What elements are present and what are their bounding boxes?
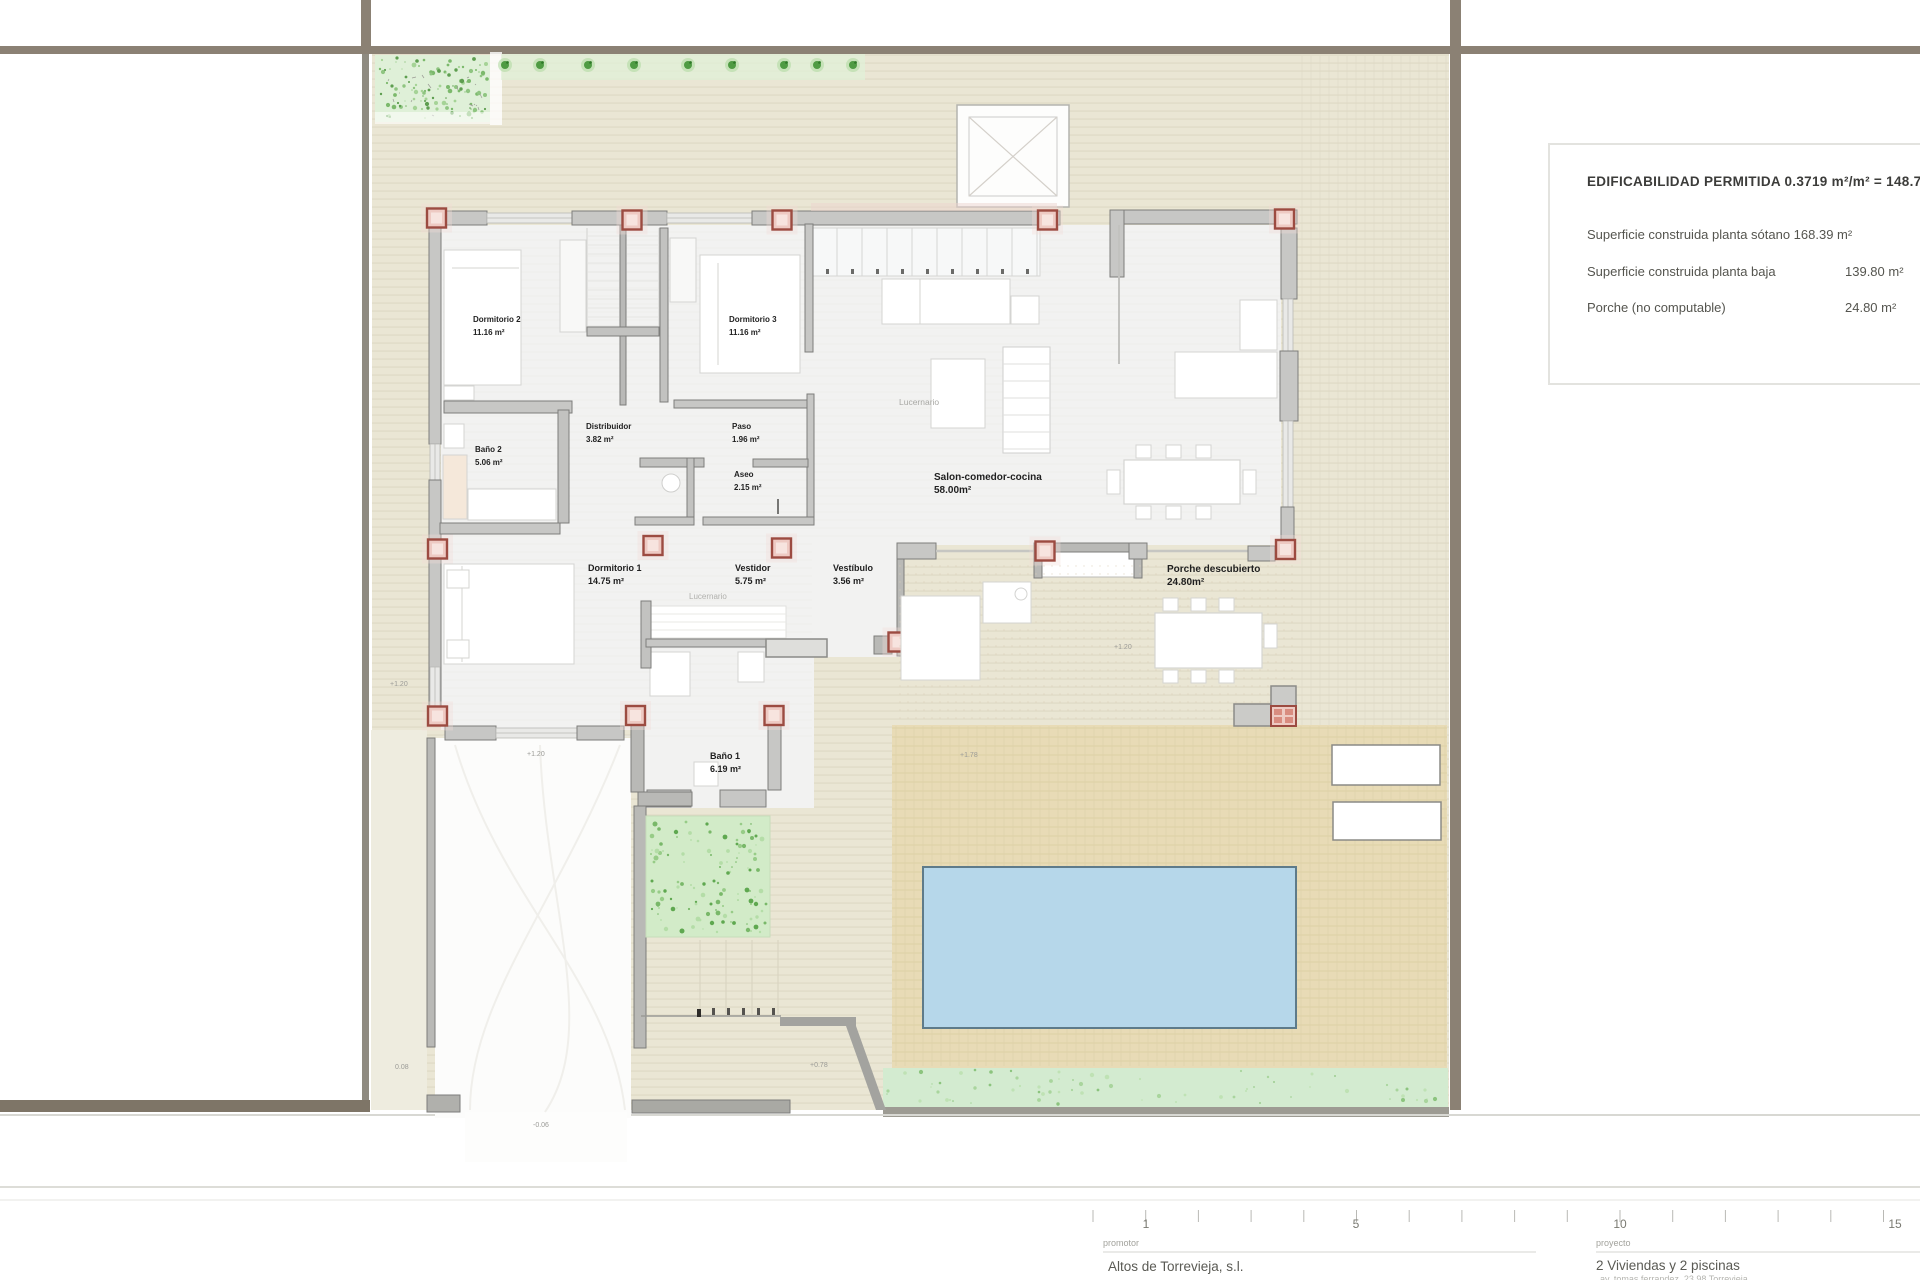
svg-text:+1.20: +1.20 <box>1114 644 1132 651</box>
svg-text:3.56 m²: 3.56 m² <box>833 576 864 586</box>
svg-text:15: 15 <box>1888 1217 1902 1231</box>
svg-text:139.80 m²: 139.80 m² <box>1845 264 1904 279</box>
svg-text:EDIFICABILIDAD PERMITIDA 0.371: EDIFICABILIDAD PERMITIDA 0.3719 m²/m² = … <box>1587 174 1920 189</box>
svg-text:1.96 m²: 1.96 m² <box>732 435 760 444</box>
svg-text:14.75 m²: 14.75 m² <box>588 576 624 586</box>
svg-text:+1.20: +1.20 <box>527 751 545 758</box>
svg-text:av. tomas ferrandez, 23.98 Tor: av. tomas ferrandez, 23.98 Torrevieja <box>1600 1274 1748 1280</box>
svg-text:10: 10 <box>1613 1217 1627 1231</box>
svg-text:Dormitorio 3: Dormitorio 3 <box>729 315 777 324</box>
svg-text:24.80 m²: 24.80 m² <box>1845 300 1897 315</box>
svg-text:5.06 m²: 5.06 m² <box>475 458 503 467</box>
svg-text:24.80m²: 24.80m² <box>1167 577 1205 588</box>
svg-text:Porche (no computable): Porche (no computable) <box>1587 300 1726 315</box>
svg-text:11.16 m²: 11.16 m² <box>729 328 761 337</box>
svg-text:Porche descubierto: Porche descubierto <box>1167 564 1260 575</box>
svg-text:Superficie construida planta b: Superficie construida planta baja <box>1587 264 1776 279</box>
svg-text:Salon-comedor-cocina: Salon-comedor-cocina <box>934 472 1042 483</box>
svg-text:6.19 m²: 6.19 m² <box>710 764 741 774</box>
svg-text:5.75 m²: 5.75 m² <box>735 576 766 586</box>
svg-text:Distribuidor: Distribuidor <box>586 422 631 431</box>
svg-text:Vestíbulo: Vestíbulo <box>833 563 874 573</box>
svg-text:5: 5 <box>1353 1217 1360 1231</box>
svg-text:promotor: promotor <box>1103 1238 1139 1248</box>
svg-text:Aseo: Aseo <box>734 470 754 479</box>
svg-text:proyecto: proyecto <box>1596 1238 1631 1248</box>
svg-text:Vestidor: Vestidor <box>735 563 771 573</box>
svg-text:Baño 2: Baño 2 <box>475 445 502 454</box>
svg-text:2.15 m²: 2.15 m² <box>734 483 762 492</box>
svg-text:Paso: Paso <box>732 422 751 431</box>
svg-text:Superficie construida planta s: Superficie construida planta sótano 168.… <box>1587 227 1853 242</box>
svg-text:Baño 1: Baño 1 <box>710 751 740 761</box>
svg-text:Altos de Torrevieja, s.l.: Altos de Torrevieja, s.l. <box>1108 1259 1244 1274</box>
svg-text:58.00m²: 58.00m² <box>934 485 972 496</box>
svg-text:Lucernario: Lucernario <box>689 592 727 601</box>
svg-text:-0.06: -0.06 <box>533 1122 549 1129</box>
svg-text:3.82 m²: 3.82 m² <box>586 435 614 444</box>
svg-text:+1.78: +1.78 <box>960 752 978 759</box>
svg-text:2 Viviendas y 2 piscinas: 2 Viviendas y 2 piscinas <box>1596 1258 1740 1273</box>
svg-text:Lucernario: Lucernario <box>899 397 939 407</box>
svg-text:Dormitorio 2: Dormitorio 2 <box>473 315 521 324</box>
svg-text:+1.20: +1.20 <box>390 681 408 688</box>
svg-text:11.16 m²: 11.16 m² <box>473 328 505 337</box>
svg-text:Dormitorio 1: Dormitorio 1 <box>588 563 642 573</box>
svg-text:+0.78: +0.78 <box>810 1062 828 1069</box>
svg-text:0.08: 0.08 <box>395 1064 409 1071</box>
svg-text:1: 1 <box>1143 1217 1150 1231</box>
